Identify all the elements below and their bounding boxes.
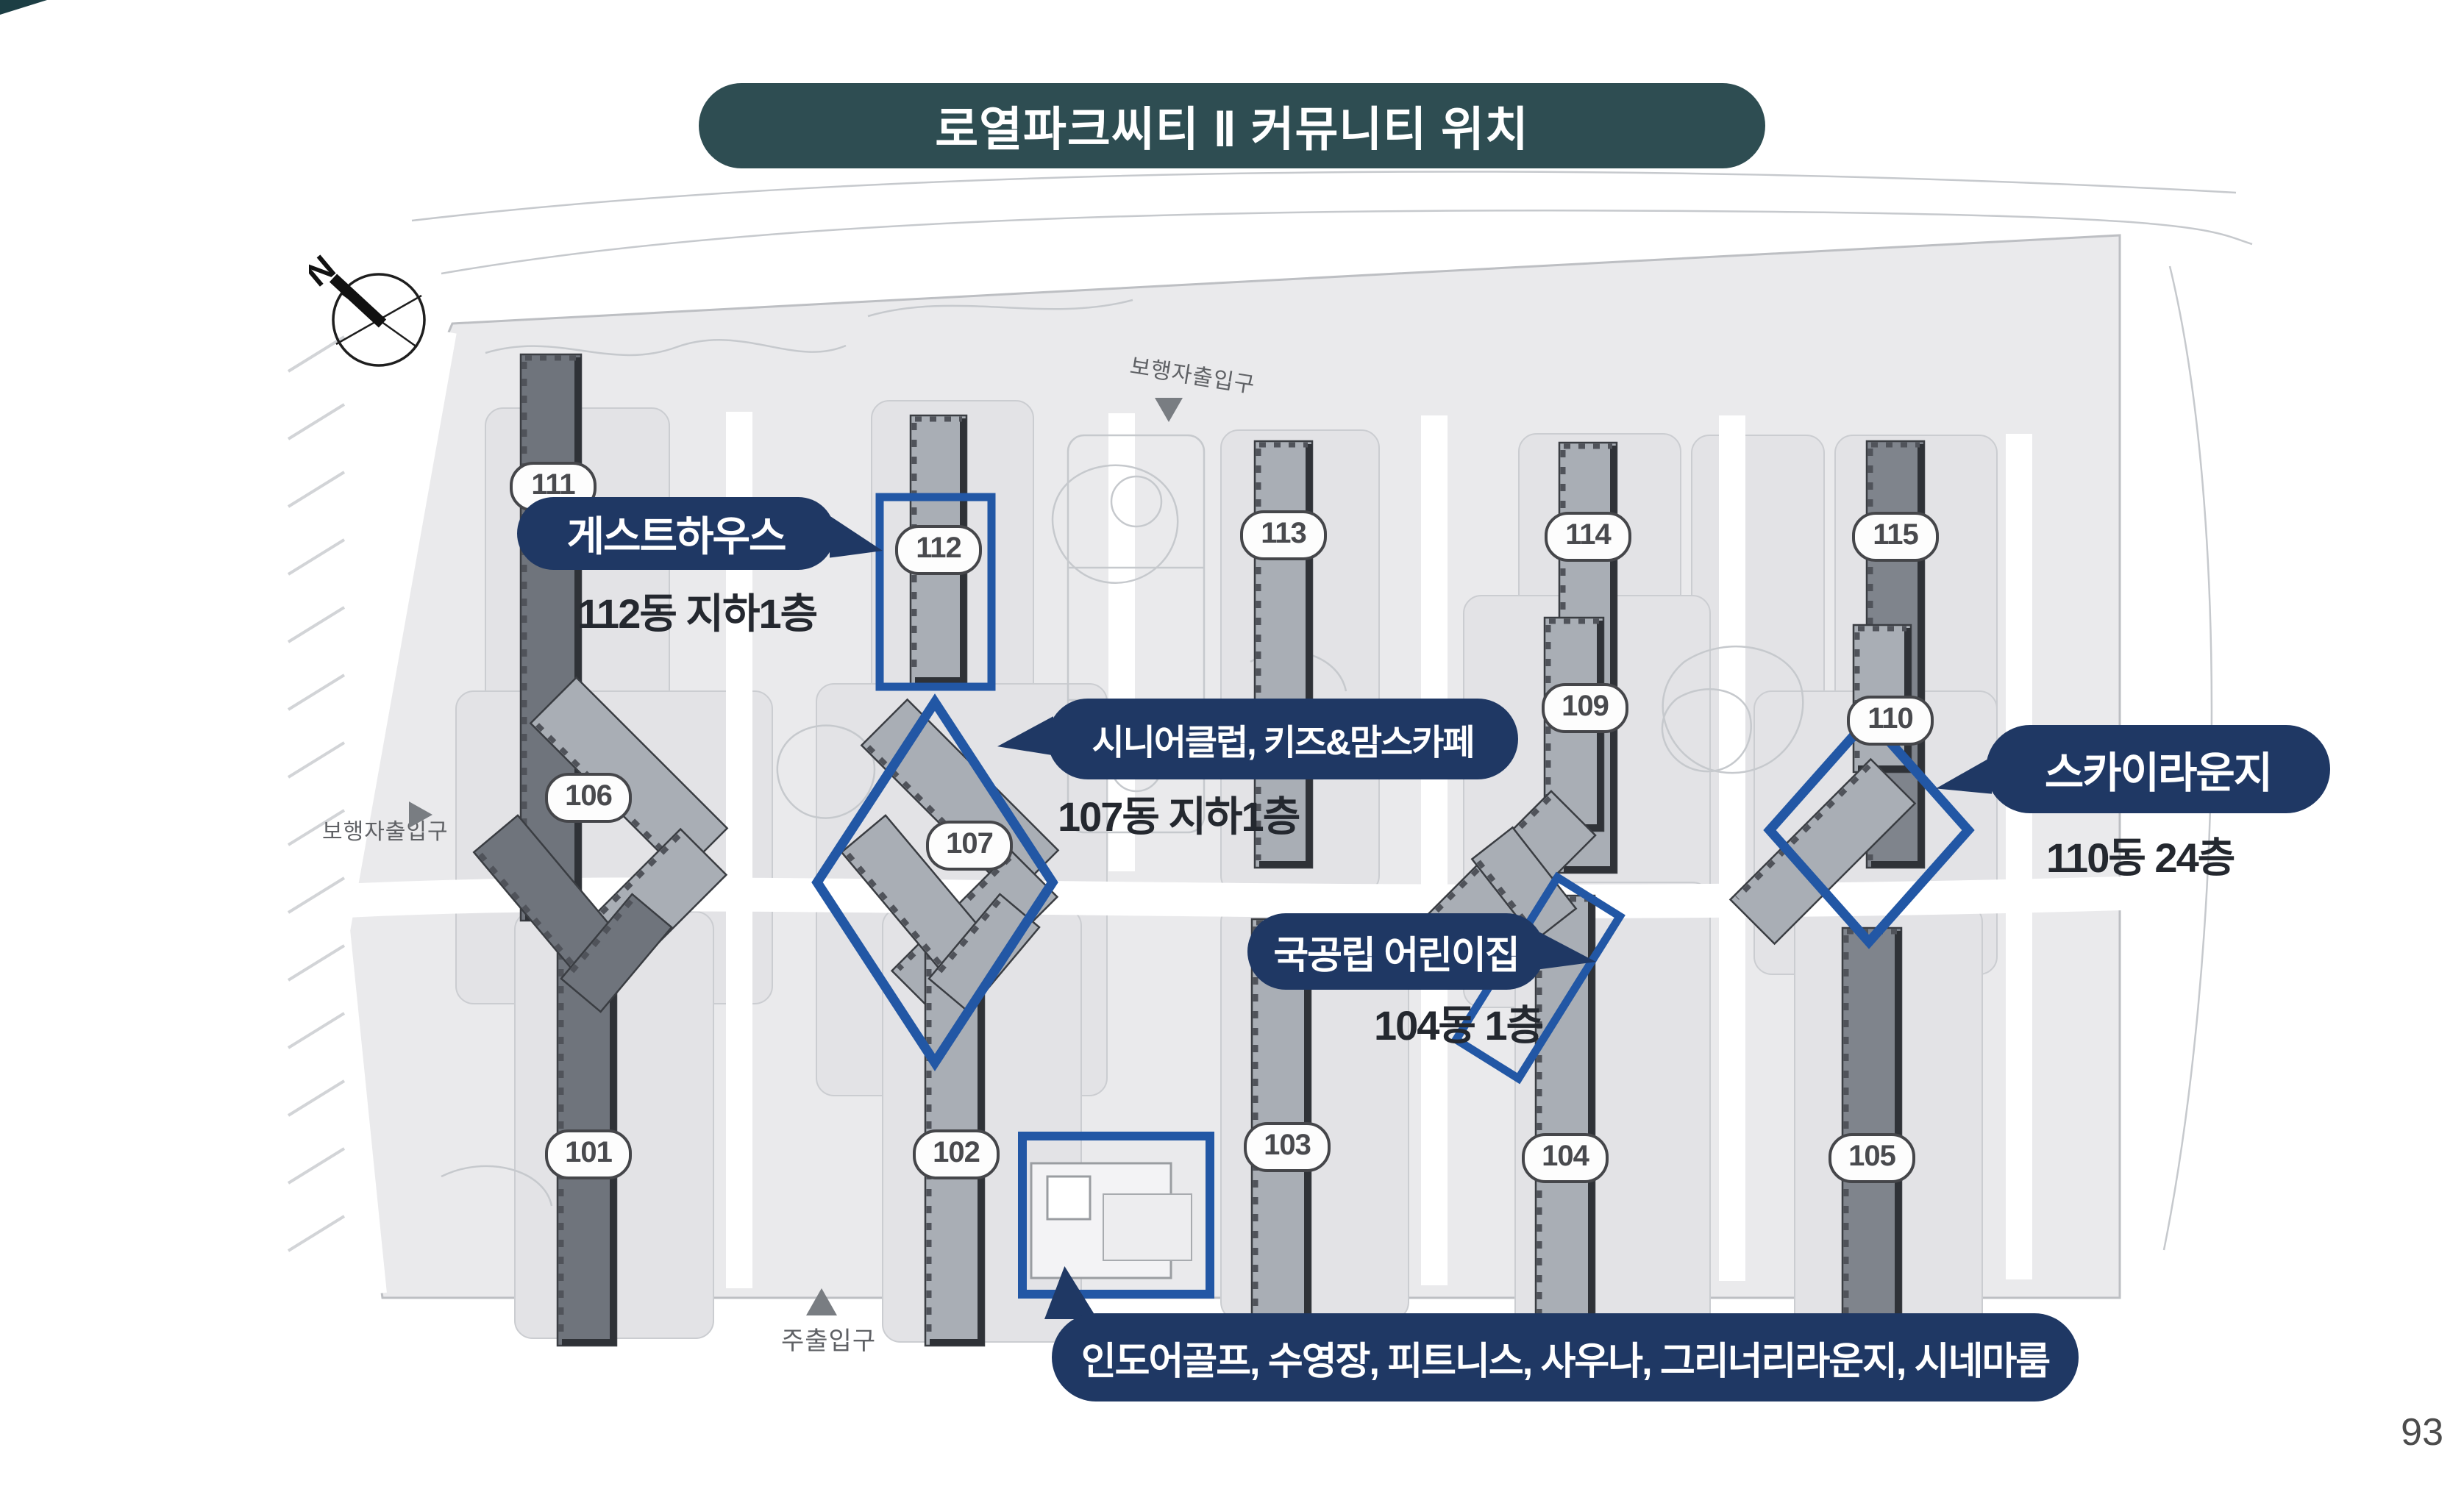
railway-hatch-line	[288, 404, 344, 439]
community-center-callout: 인도어골프, 수영장, 피트니스, 사우나, 그리너리라운지, 시네마룸	[1052, 1313, 2079, 1401]
guesthouse-callout: 게스트하우스	[517, 497, 835, 570]
building-105	[1842, 928, 1901, 1336]
building-badge: 109	[1542, 683, 1628, 733]
building-badge: 112	[895, 525, 982, 575]
building-badge: 115	[1852, 512, 1939, 562]
building-badge: 110	[1847, 696, 1934, 746]
building-badge: 101	[545, 1129, 632, 1179]
building-badge: 114	[1545, 512, 1631, 562]
building-badge: 113	[1240, 510, 1327, 560]
senior-club-location-label: 107동 지하1층	[1058, 784, 1299, 843]
railway-hatch-line	[288, 472, 344, 507]
guesthouse-location-label: 112동 지하1층	[577, 581, 816, 640]
railway-hatch-line	[288, 1149, 344, 1183]
railway-hatch-line	[288, 1081, 344, 1115]
page-title: 로열파크씨티 Ⅱ 커뮤니티 위치	[699, 83, 1765, 168]
compass-north-icon: N	[309, 246, 449, 386]
building-badge: 104	[1522, 1133, 1609, 1183]
building-badge: 106	[545, 773, 632, 823]
senior-club-callout: 시니어클럽, 키즈&맘스카페	[1047, 699, 1518, 779]
daycare-location-label: 104동 1층	[1374, 993, 1542, 1052]
page-number: 93	[2401, 1410, 2443, 1454]
building-badge: 107	[926, 821, 1013, 871]
sky-lounge-callout: 스카이라운지	[1986, 725, 2330, 813]
railway-hatch-line	[288, 540, 344, 574]
main-entrance-label: 주출입구	[781, 1321, 876, 1357]
sky-lounge-location-label: 110동 24층	[2046, 825, 2234, 885]
railway-hatch-line	[288, 743, 344, 777]
railway-hatch-line	[288, 675, 344, 710]
building-badge: 103	[1244, 1122, 1331, 1172]
building-badge: 102	[913, 1129, 1000, 1179]
railway-hatch-line	[288, 1216, 344, 1251]
pedestrian-entrance-left-label: 보행자출입구	[322, 813, 449, 846]
daycare-callout: 국공립 어린이집	[1247, 913, 1545, 990]
building-badge: 105	[1829, 1133, 1915, 1183]
community-center-building	[1031, 1163, 1192, 1278]
railway-hatch-line	[288, 607, 344, 642]
